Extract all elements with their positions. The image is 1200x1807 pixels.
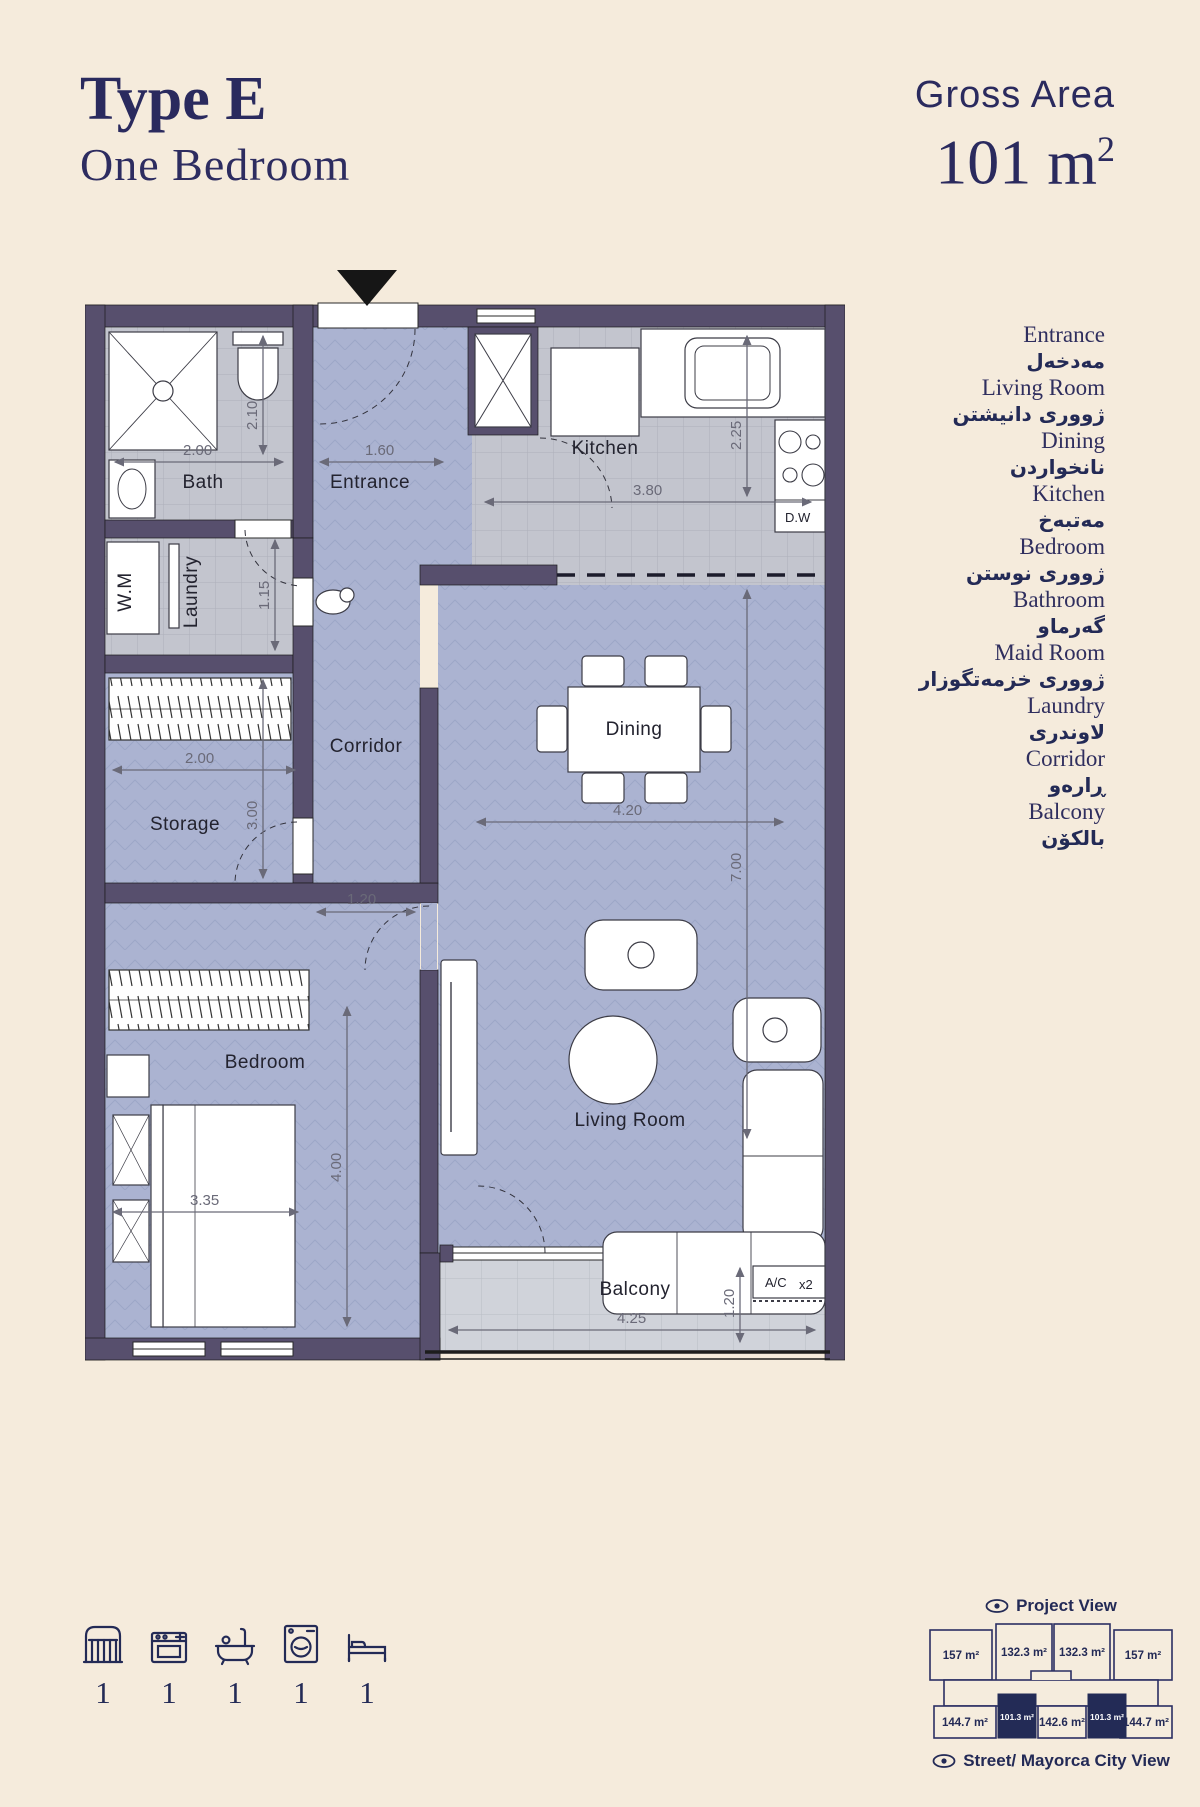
gross-area-value: 101 m2	[915, 117, 1115, 194]
toilet	[233, 332, 283, 345]
bed-icon	[343, 1620, 391, 1668]
bedroom-door-opening	[421, 903, 437, 970]
entrance-label: Entrance	[330, 472, 410, 493]
legend-ku: ژوورى خزمەتگوزار	[775, 666, 1105, 693]
unit-area-label: 144.7 m²	[942, 1717, 988, 1729]
dim-dining-w: 4.20	[613, 802, 642, 819]
project-view-row: Project View	[918, 1596, 1184, 1616]
ironing-board	[169, 544, 179, 628]
dim-laundry-h: 1.15	[256, 581, 273, 610]
dim-storage-h: 3.00	[244, 801, 261, 830]
legend-en: Laundry	[775, 693, 1105, 719]
legend-en: Kitchen	[775, 481, 1105, 507]
legend-en: Dining	[775, 428, 1105, 454]
legend-item-corridor: Corridor ڕارەو	[775, 746, 1105, 799]
project-view-label: Project View	[1016, 1596, 1117, 1616]
wm-label: W.M	[115, 572, 136, 612]
corridor-label: Corridor	[330, 736, 403, 757]
legend-en: Maid Room	[775, 640, 1105, 666]
key-plan: Project View 157 m² 132.3 m² 132	[918, 1596, 1184, 1771]
legend-item-maid-room: Maid Room ژوورى خزمەتگوزار	[775, 640, 1105, 693]
amenity-bath: 1	[210, 1620, 260, 1711]
bed	[163, 1105, 295, 1327]
tv-console	[441, 960, 477, 1155]
legend-ku: مەدخەل	[775, 348, 1105, 375]
legend-en: Living Room	[775, 375, 1105, 401]
nightstand-1	[107, 1055, 149, 1097]
entrance-door-opening	[318, 303, 418, 328]
floor-plan: D.W	[85, 270, 845, 1370]
bath-door-opening	[235, 520, 291, 538]
dim-bath-h: 2.10	[244, 401, 261, 430]
legend-ku: ژوورى نوستن	[775, 560, 1105, 587]
unit-area-label: 144.7 m²	[1123, 1717, 1169, 1729]
balcony-label: Balcony	[599, 1279, 670, 1300]
unit-area-label: 157 m²	[1125, 1650, 1162, 1662]
legend-item-bedroom: Bedroom ژوورى نوستن	[775, 534, 1105, 587]
bath-label: Bath	[182, 472, 223, 493]
kitchen-sink	[685, 338, 780, 408]
street-view-row: Street/ Mayorca City View	[918, 1751, 1184, 1771]
legend-ku: لاوندرى	[775, 719, 1105, 746]
dim-kitchen-h: 2.25	[728, 421, 745, 450]
entrance-door-icon	[79, 1620, 127, 1668]
legend-en: Bathroom	[775, 587, 1105, 613]
shaft	[475, 334, 531, 427]
coffee-table	[569, 1016, 657, 1104]
dim-storage-w: 2.00	[185, 750, 214, 767]
legend-en: Corridor	[775, 746, 1105, 772]
bed-headboard	[151, 1105, 163, 1327]
floorplan-page: { "colors": { "background": "#f5ebdc", "…	[0, 0, 1200, 1807]
eye-icon	[932, 1754, 956, 1768]
dim-bedroom-h: 4.00	[328, 1153, 345, 1182]
unit-area-label: 142.6 m²	[1039, 1717, 1085, 1729]
storage-label: Storage	[150, 814, 220, 835]
unit-area-label: 132.3 m²	[1001, 1647, 1047, 1659]
ac-label: A/C	[765, 1275, 787, 1290]
amenity-count: 1	[78, 1675, 128, 1711]
kitchen-island	[551, 348, 639, 436]
legend-ku: مەتبەخ	[775, 507, 1105, 534]
amenity-count: 1	[276, 1675, 326, 1711]
unit-area-label-highlight: 101.3 m²	[1090, 1712, 1124, 1722]
kitchen-icon	[145, 1620, 193, 1668]
bedroom-label: Bedroom	[225, 1052, 306, 1073]
amenity-entrance: 1	[78, 1620, 128, 1711]
gross-area: Gross Area 101 m2	[915, 74, 1115, 194]
legend-ku: بالكۆن	[775, 825, 1105, 852]
amenity-count: 1	[342, 1675, 392, 1711]
entrance-marker-icon	[337, 270, 397, 306]
amenity-count: 1	[144, 1675, 194, 1711]
dim-balcony-w: 4.25	[617, 1310, 646, 1327]
living-room-label: Living Room	[574, 1110, 685, 1131]
legend-ku: گەرماو	[775, 613, 1105, 640]
person-figure-2	[763, 1018, 787, 1042]
legend-ku: نانخواردن	[775, 454, 1105, 481]
amenity-kitchen: 1	[144, 1620, 194, 1711]
legend-item-dining: Dining نانخواردن	[775, 428, 1105, 481]
legend-item-living-room: Living Room ژوورى دانيشتن	[775, 375, 1105, 428]
legend-ku: ژوورى دانيشتن	[775, 401, 1105, 428]
key-plan-diagram: 157 m² 132.3 m² 132.3 m² 157 m² 144.7 m²…	[928, 1622, 1174, 1740]
amenities-row: 1 1 1	[78, 1620, 392, 1711]
gross-area-label: Gross Area	[915, 74, 1115, 117]
person-figure-1	[628, 942, 654, 968]
dim-bath-w: 2.00	[183, 442, 212, 459]
legend-item-entrance: Entrance مەدخەل	[775, 322, 1105, 375]
street-view-label: Street/ Mayorca City View	[963, 1751, 1170, 1771]
unit-area-label: 157 m²	[943, 1650, 980, 1662]
legend-item-bathroom: Bathroom گەرماو	[775, 587, 1105, 640]
unit-area-label: 132.3 m²	[1059, 1647, 1105, 1659]
bathtub-icon	[211, 1620, 259, 1668]
page-subtitle: One Bedroom	[80, 138, 350, 191]
kitchen-label: Kitchen	[572, 438, 639, 459]
legend-en: Balcony	[775, 799, 1105, 825]
washing-machine-icon	[277, 1620, 325, 1668]
balcony-ac: A/C x2	[753, 1266, 825, 1301]
legend-en: Bedroom	[775, 534, 1105, 560]
amenity-count: 1	[210, 1675, 260, 1711]
dim-living-h: 7.00	[728, 853, 745, 882]
legend-en: Entrance	[775, 322, 1105, 348]
legend-item-kitchen: Kitchen مەتبەخ	[775, 481, 1105, 534]
unit-area-label-highlight: 101.3 m²	[1000, 1712, 1034, 1722]
dim-balcony-h: 1.20	[721, 1289, 738, 1318]
legend-ku: ڕارەو	[775, 772, 1105, 799]
ac-mult-label: x2	[799, 1277, 813, 1292]
storage-door-opening	[293, 818, 313, 874]
dim-entrance-w: 1.60	[365, 442, 394, 459]
laundry-label: Laundry	[181, 556, 202, 628]
dim-bedroom-w: 3.35	[190, 1192, 219, 1209]
legend-item-laundry: Laundry لاوندرى	[775, 693, 1105, 746]
legend-item-balcony: Balcony بالكۆن	[775, 799, 1105, 852]
dim-corridor-w: 1.20	[347, 891, 376, 908]
dim-kitchen-w: 3.80	[633, 482, 662, 499]
eye-icon	[985, 1599, 1009, 1613]
amenity-bedroom: 1	[342, 1620, 392, 1711]
dining-label: Dining	[606, 719, 663, 740]
page-title: Type E	[80, 64, 267, 135]
room-legend: Entrance مەدخەل Living Room ژوورى دانيشت…	[775, 322, 1105, 852]
amenity-laundry: 1	[276, 1620, 326, 1711]
